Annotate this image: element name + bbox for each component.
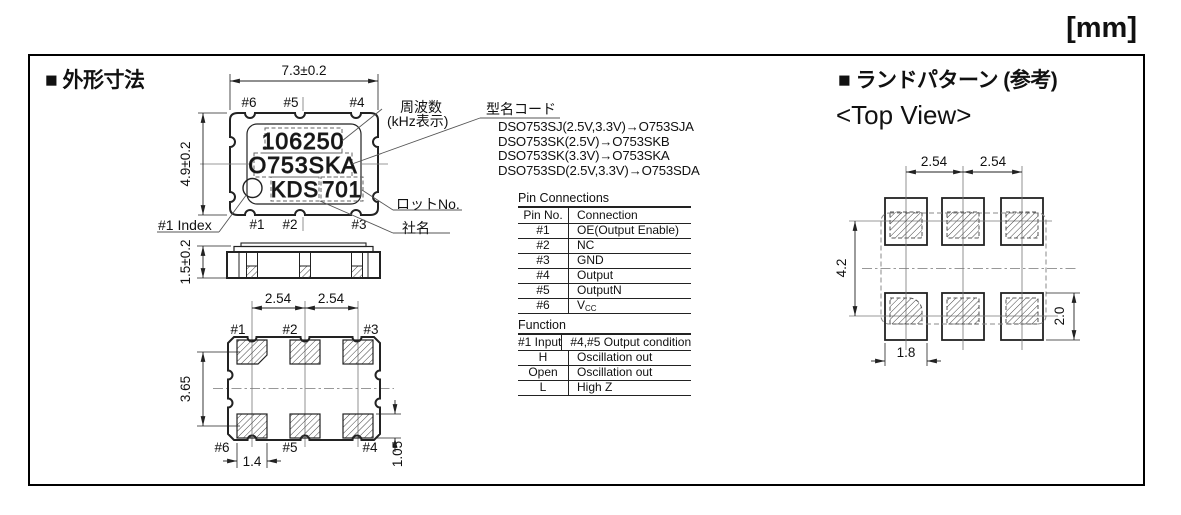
table-row: Open Oscillation out — [518, 366, 691, 381]
land-dim-row-pitch: 4.2 — [834, 221, 855, 316]
pin-label: #2 — [282, 322, 297, 337]
column-header: #1 Input — [518, 335, 562, 350]
pin-number: #5 — [518, 284, 569, 298]
column-header: Pin No. — [518, 208, 569, 223]
pin-number: #6 — [518, 299, 569, 313]
table-header-row: Pin No. Connection — [518, 208, 691, 224]
pad-1 — [237, 340, 267, 364]
table-row: #1 OE(Output Enable) — [518, 224, 691, 239]
dim-text-pitch1: 2.54 — [265, 291, 292, 306]
column-header: #4,#5 Output condition — [562, 335, 691, 350]
function-input: Open — [518, 366, 569, 380]
land-dim-pitch: 2.54 2.54 — [906, 154, 1022, 172]
pin-label: #3 — [363, 322, 378, 337]
pin-number: #1 — [518, 224, 569, 238]
column-header: Connection — [569, 208, 691, 223]
pin-connection: NC — [569, 239, 691, 253]
table-row: #2 NC — [518, 239, 691, 254]
dim-text-land-pitch2: 2.54 — [980, 154, 1007, 169]
pin-connections-title: Pin Connections — [518, 191, 691, 206]
pin-label: #2 — [282, 217, 297, 232]
land-pattern-drawing: 2.54 2.54 4.2 1.8 2.0 — [834, 154, 1080, 366]
function-output: High Z — [569, 381, 691, 395]
function-table: Function #1 Input #4,#5 Output condition… — [518, 318, 691, 396]
land-pattern-topview-label: <Top View> — [836, 100, 971, 131]
pin-label: #6 — [214, 440, 229, 455]
pin-number: #4 — [518, 269, 569, 283]
dim-text-width: 7.3±0.2 — [282, 63, 327, 78]
pin-number: #2 — [518, 239, 569, 253]
type-code-entry: DSO753SJ(2.5V,3.3V)→O753SJA — [498, 120, 700, 135]
dim-thickness: 1.5±0.2 — [178, 240, 231, 285]
dim-text-pad-width: 1.4 — [243, 454, 262, 469]
type-code-entry: DSO753SK(3.3V)→O753SKA — [498, 149, 700, 164]
pin-connection: Output — [569, 269, 691, 283]
function-input: H — [518, 351, 569, 365]
marking-type-code: O753SKA — [248, 152, 357, 178]
pad-6 — [237, 414, 267, 438]
component-pads-phantom — [890, 212, 1038, 324]
pad-4 — [343, 414, 373, 438]
pin-connections-table: Pin Connections Pin No. Connection #1 OE… — [518, 191, 691, 314]
pin-label: #5 — [283, 95, 298, 110]
table-row: #4 Output — [518, 269, 691, 284]
dim-text-pad-height: 1.05 — [390, 441, 405, 467]
type-code-entry: DSO753SK(2.5V)→O753SKB — [498, 135, 700, 150]
dim-text-land-pad-height: 2.0 — [1052, 307, 1067, 326]
pin-label: #1 — [230, 322, 245, 337]
marking-frequency: 106250 — [262, 128, 345, 154]
pin-number: #3 — [518, 254, 569, 268]
pin1-index-label: #1 Index — [158, 217, 212, 233]
table-header-row: #1 Input #4,#5 Output condition — [518, 335, 691, 351]
marking-company: KDS — [271, 177, 319, 202]
pin-connection: OE(Output Enable) — [569, 224, 691, 238]
pin-label: #4 — [362, 440, 378, 455]
dim-text-thickness: 1.5±0.2 — [178, 240, 193, 285]
pin-label: #3 — [351, 217, 366, 232]
dim-text-land-pitch1: 2.54 — [921, 154, 948, 169]
table-row: #5 OutputN — [518, 284, 691, 299]
dim-row-pitch: 3.65 — [178, 352, 240, 426]
pad-3 — [343, 340, 373, 364]
table-row: H Oscillation out — [518, 351, 691, 366]
dim-text-height: 4.9±0.2 — [178, 142, 193, 187]
lot-number-callout-label: ロットNo. — [396, 194, 460, 214]
type-code-callout-label: 型名コード — [486, 99, 556, 119]
company-callout-label: 社名 — [402, 218, 430, 238]
table-row: #3 GND — [518, 254, 691, 269]
dim-text-pitch2: 2.54 — [318, 291, 345, 306]
pin-label: #1 — [249, 217, 264, 232]
function-input: L — [518, 381, 569, 395]
pin-label: #6 — [241, 95, 256, 110]
pin-connection: OutputN — [569, 284, 691, 298]
table-row: #6 VCC — [518, 299, 691, 314]
pad-5 — [290, 414, 320, 438]
dim-text-land-pad-width: 1.8 — [897, 345, 916, 360]
datasheet-page: [mm] — [0, 0, 1181, 515]
package-bottom-view: 2.54 2.54 3.65 1.4 — [178, 291, 405, 469]
pin-connection: GND — [569, 254, 691, 268]
outline-section-title: ■ 外形寸法 — [45, 64, 145, 94]
land-dim-pad-height: 2.0 — [1046, 293, 1080, 340]
land-dim-pad-width: 1.8 — [871, 343, 941, 366]
type-code-list: DSO753SJ(2.5V,3.3V)→O753SJA DSO753SK(2.5… — [498, 120, 700, 179]
vcc-subscript: CC — [585, 304, 597, 313]
function-output: Oscillation out — [569, 351, 691, 365]
table-row: L High Z — [518, 381, 691, 396]
pin-label: #5 — [282, 440, 297, 455]
dim-text-land-row-pitch: 4.2 — [834, 259, 849, 278]
type-code-entry: DSO753SD(2.5V,3.3V)→O753SDA — [498, 164, 700, 179]
pin-connection: VCC — [569, 299, 691, 313]
dim-text-row-pitch: 3.65 — [178, 376, 193, 402]
function-output: Oscillation out — [569, 366, 691, 380]
marking-lot: 701 — [322, 177, 362, 202]
land-pattern-section-title: ■ ランドパターン (参考) — [838, 64, 1057, 94]
frequency-unit-callout-label: (kHz表示) — [387, 111, 448, 131]
package-side-view: 1.5±0.2 — [178, 240, 380, 285]
pad-2 — [290, 340, 320, 364]
function-table-title: Function — [518, 318, 691, 333]
pin-label: #4 — [349, 95, 365, 110]
